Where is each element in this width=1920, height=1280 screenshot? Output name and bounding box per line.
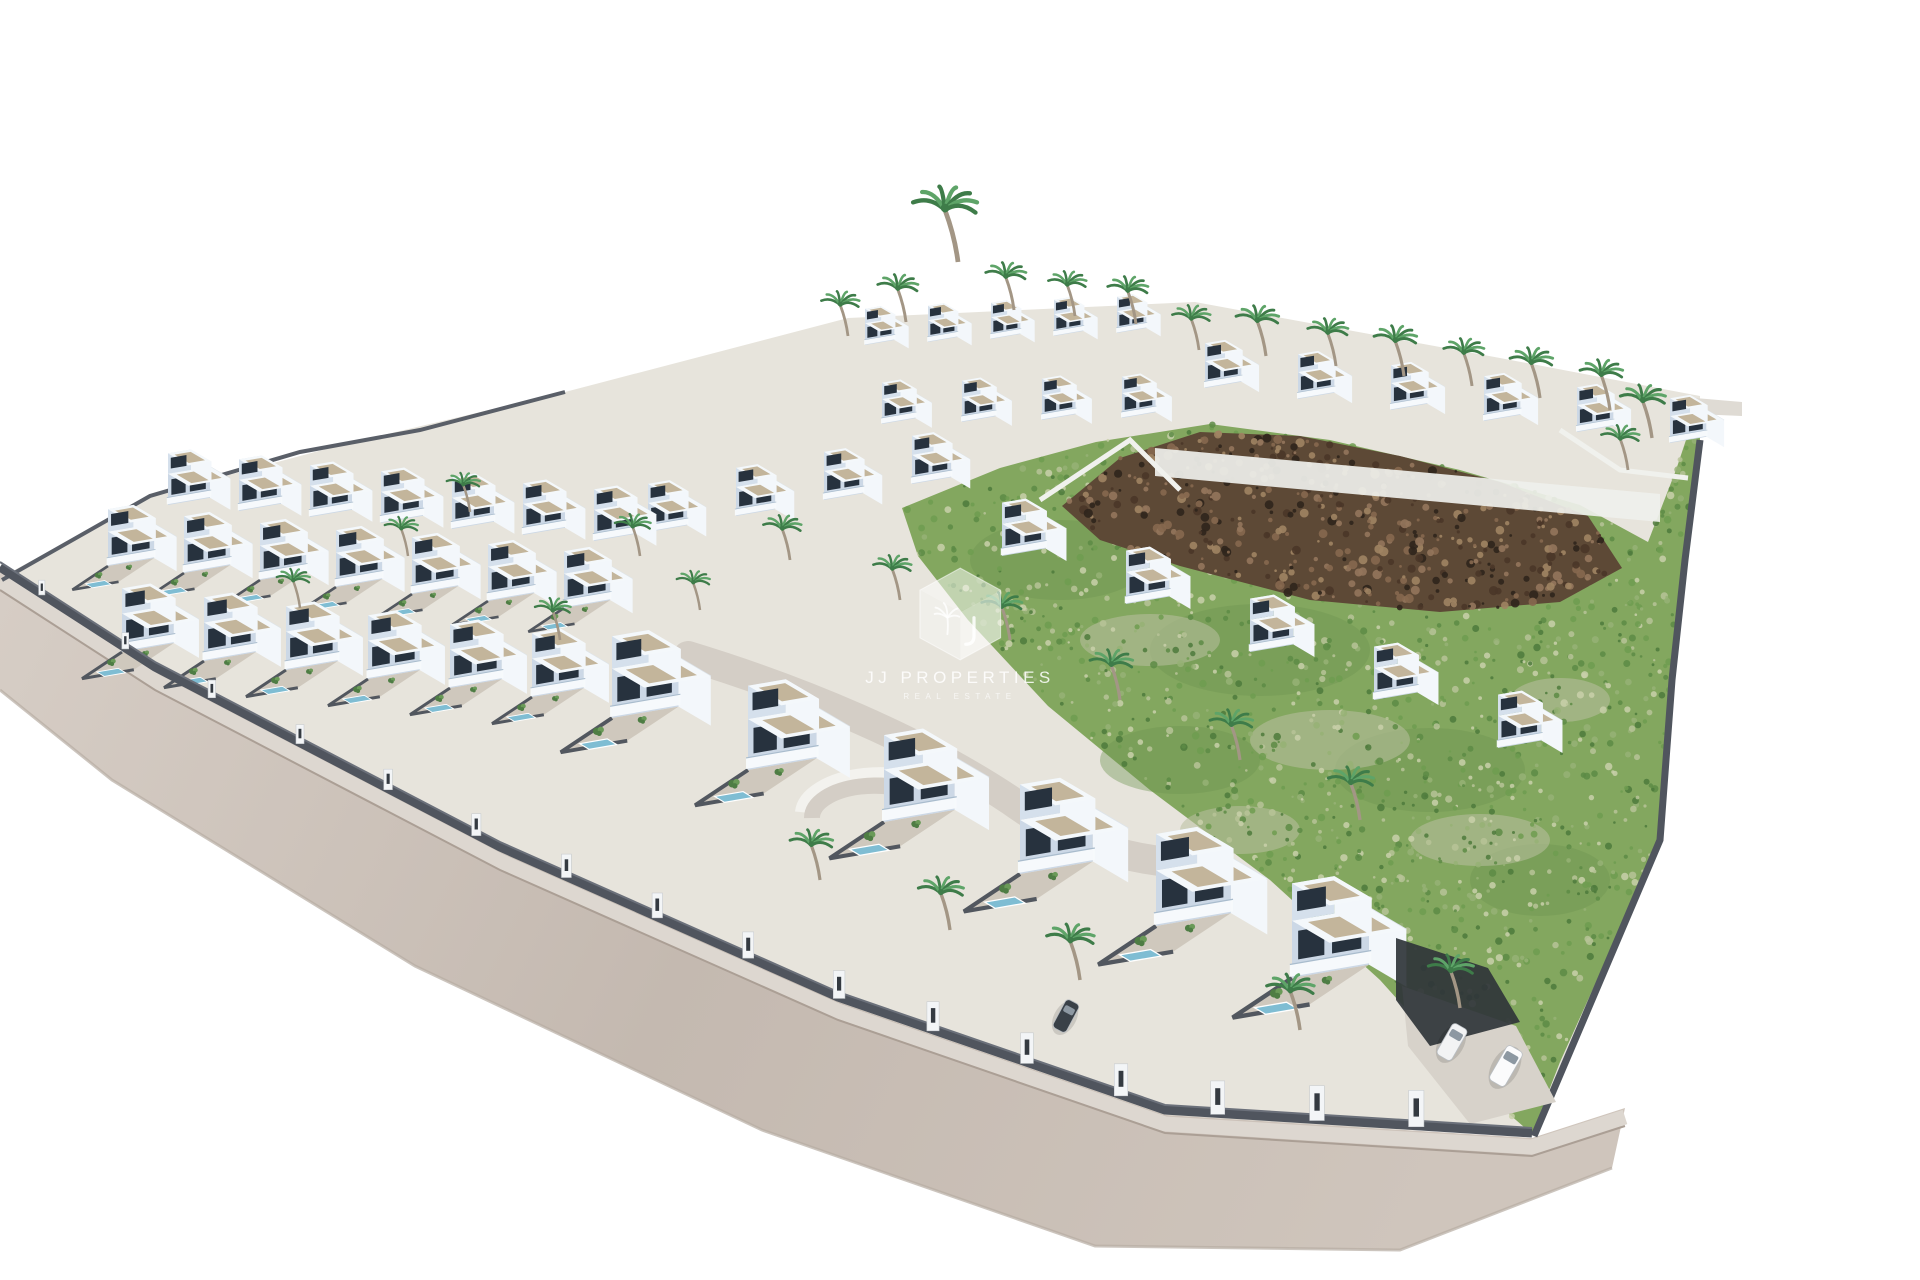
wall-pillar (743, 932, 754, 958)
render-scene (0, 0, 1920, 1280)
palm-tree (913, 187, 977, 262)
wall-pillar (39, 580, 45, 595)
wall-pillar (1211, 1081, 1225, 1114)
wall-pillar (122, 633, 129, 649)
wall-pillar (1021, 1033, 1034, 1064)
wall-pillar (1409, 1090, 1424, 1126)
wall-pillar (208, 680, 215, 698)
wall-pillar (652, 893, 662, 918)
wall-pillar (296, 725, 304, 744)
wall-pillar (927, 1002, 939, 1031)
villa-development-aerial-render: JJ PROPERTIES REAL ESTATE (0, 0, 1920, 1280)
wall-pillar (1114, 1064, 1127, 1096)
wall-pillar (384, 769, 393, 790)
wall-pillar (833, 971, 845, 999)
wall-pillar (562, 854, 572, 877)
wall-pillar (472, 814, 481, 836)
wall-pillar (1310, 1086, 1325, 1121)
